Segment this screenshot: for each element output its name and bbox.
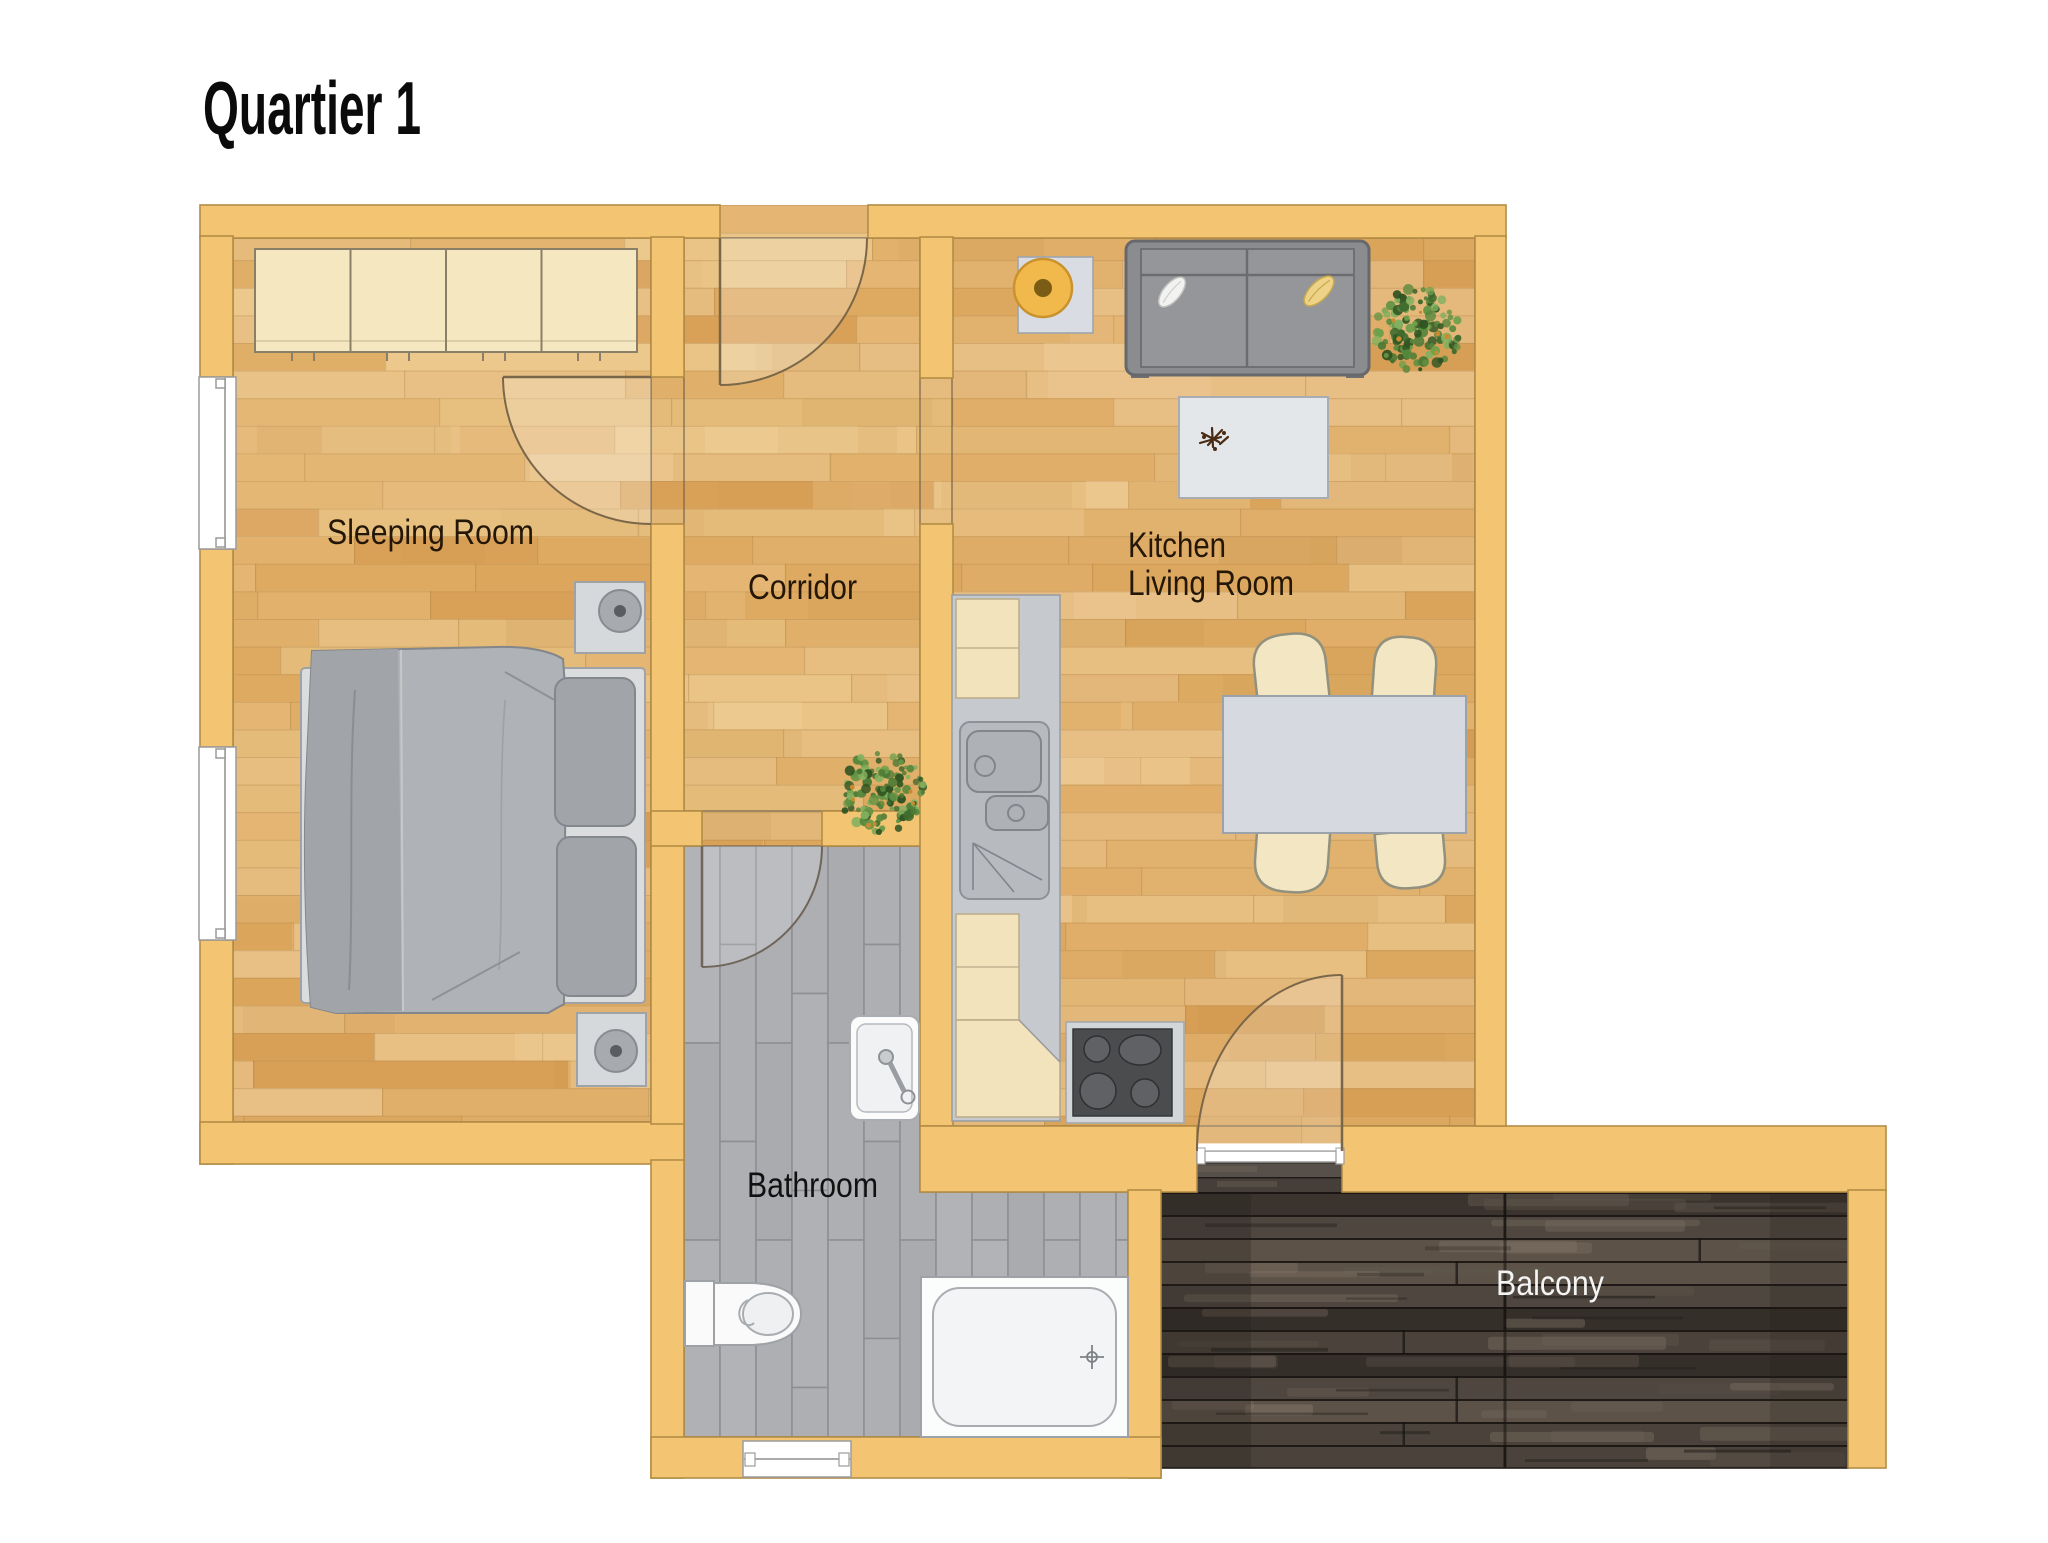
svg-text:Kitchen: Kitchen [1128, 526, 1226, 565]
svg-text:Quartier 1: Quartier 1 [203, 66, 421, 150]
svg-text:Corridor: Corridor [748, 568, 857, 607]
svg-text:Sleeping Room: Sleeping Room [327, 513, 534, 552]
svg-text:Living Room: Living Room [1128, 564, 1294, 603]
svg-text:Bathroom: Bathroom [747, 1166, 878, 1205]
svg-text:Balcony: Balcony [1496, 1264, 1604, 1303]
